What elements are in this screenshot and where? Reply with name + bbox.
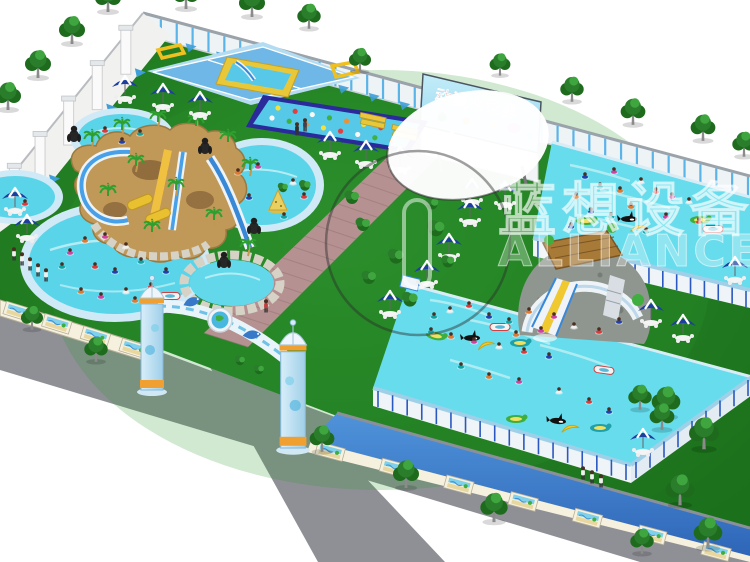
water-park-scene: 动漫水世界 <box>0 0 750 562</box>
entrance-sign <box>208 308 232 332</box>
boat-float <box>490 324 510 331</box>
watermark-text-en: ALLIANCE <box>498 226 750 277</box>
water-park-render: 动漫水世界 <box>0 0 750 562</box>
